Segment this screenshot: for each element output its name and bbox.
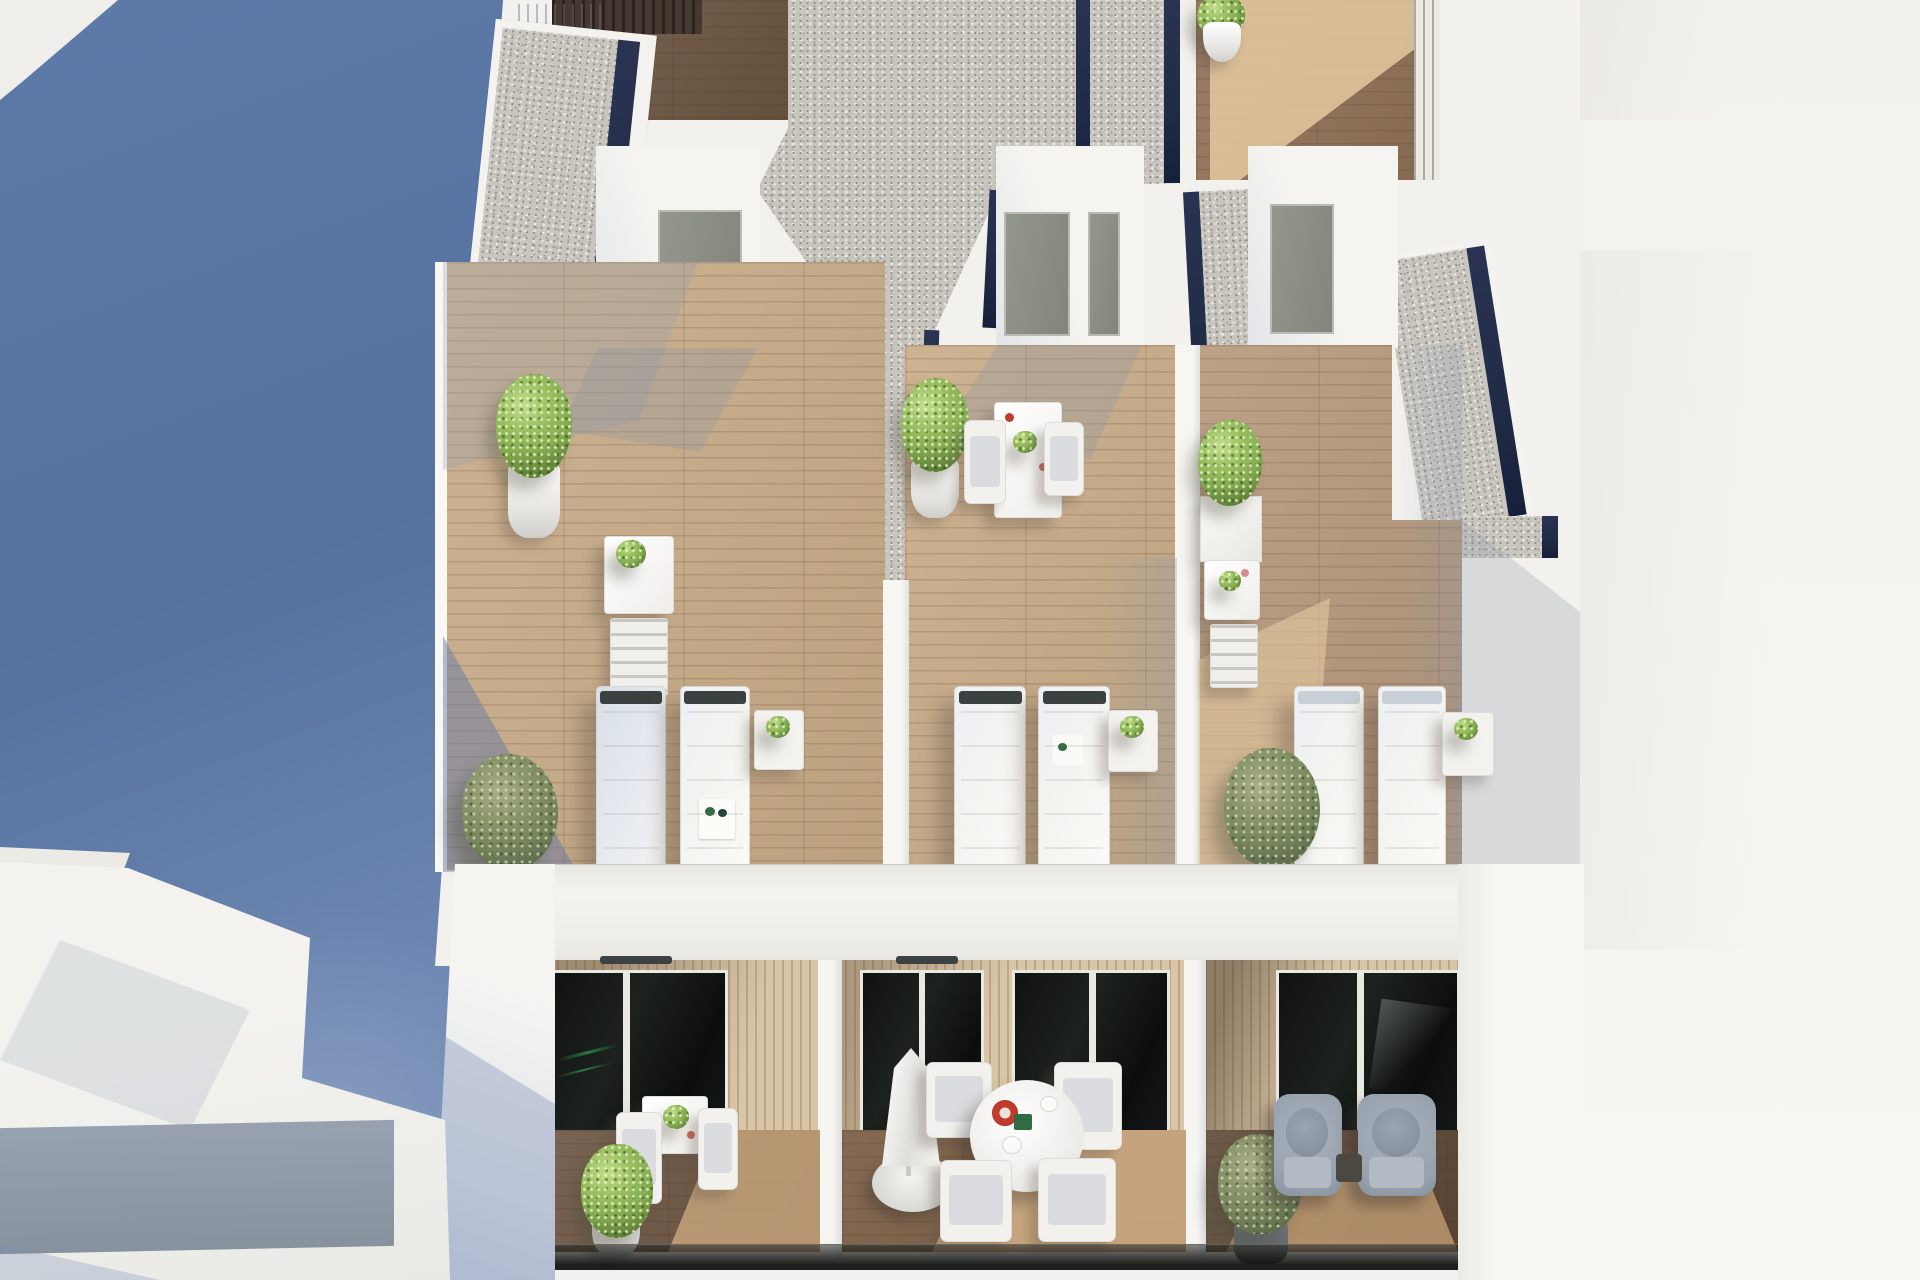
balcony-divider-post-1 <box>818 960 842 1260</box>
balcony-divider-post-2 <box>1184 960 1206 1260</box>
stair-hut-middle-door-b <box>1088 212 1120 336</box>
balcony-bottom-rail <box>430 1270 1465 1280</box>
balcony-left-chair-2 <box>698 1108 738 1190</box>
left-side-table-plant <box>766 716 790 738</box>
balcony-right-armchair-1 <box>1274 1094 1342 1196</box>
middle-slider-handle <box>896 956 958 964</box>
east-wall-gravel-drain <box>1542 516 1558 558</box>
magazine-tray <box>699 799 735 839</box>
white-cup-1 <box>1002 1136 1022 1154</box>
right-terrace-olive-bush <box>1224 748 1320 868</box>
right-slider-reflection <box>1369 999 1451 1098</box>
tray2-item-green <box>1058 743 1067 751</box>
middle-bistro-chair-left <box>964 420 1006 504</box>
left-terrace-folding-chair <box>610 618 668 696</box>
middle-terrace-plant <box>901 378 969 472</box>
terrace-divider-wall-1 <box>883 580 909 872</box>
left-slider-green-reflection-2 <box>556 1062 613 1078</box>
right-side-table-plant <box>1454 718 1478 740</box>
balcony-middle-chair-bottom-right <box>1038 1158 1116 1242</box>
east-wall-gravel-band <box>1462 516 1542 558</box>
right-console-pink-item <box>1241 569 1249 577</box>
left-console-plant <box>616 540 646 568</box>
magazine-tray-2 <box>1053 735 1083 765</box>
terrace-front-parapet <box>430 864 1580 967</box>
balcony-glass-balustrade <box>548 1244 1464 1273</box>
balcony-right-side-table <box>1336 1154 1362 1182</box>
aerial-building-render <box>0 0 1920 1280</box>
middle-terrace-lounger-2 <box>1038 686 1110 870</box>
right-terrace-console-table <box>1204 560 1260 620</box>
left-terrace-lounger-2 <box>680 686 750 868</box>
middle-bistro-chair-right <box>1044 422 1084 496</box>
balcony-left-bush <box>581 1144 653 1238</box>
gravel-drain-edge-right <box>1164 0 1180 183</box>
balcony-middle-chair-bottom-left <box>940 1160 1012 1242</box>
middle-terrace-lounger-1 <box>954 686 1026 870</box>
middle-side-table-plant <box>1120 716 1144 738</box>
left-slider-green-reflection <box>558 1044 619 1062</box>
left-terrace-lounger-1 <box>596 686 666 870</box>
bottom-left-recessed-band <box>0 1120 394 1254</box>
right-console-plant <box>1219 571 1241 591</box>
right-terrace-lounger-2 <box>1378 686 1446 868</box>
stair-hut-right-door <box>1270 204 1334 334</box>
terrace-divider-wall-2 <box>1175 345 1200 872</box>
east-end-wall <box>1458 864 1584 1280</box>
tray-item-dark <box>718 809 727 817</box>
white-cup-2 <box>1040 1096 1058 1112</box>
right-terrace-folding-chair <box>1210 624 1258 688</box>
upper-right-railing <box>1414 0 1440 180</box>
stair-hut-middle-door-a <box>1004 212 1070 336</box>
left-slider-handle <box>600 956 672 964</box>
green-box <box>1014 1114 1032 1130</box>
left-terrace-tree <box>496 374 572 478</box>
backdrop-right-soft-shade <box>1580 250 1920 950</box>
balcony-right-armchair-2 <box>1358 1094 1436 1196</box>
left-terrace-olive-bush <box>462 754 558 870</box>
balcony-left-table-plant <box>663 1105 689 1129</box>
balcony-left-table-red-item <box>687 1131 695 1139</box>
tray-item-green <box>705 807 715 816</box>
right-terrace-planter-bush <box>1198 420 1262 506</box>
far-right-gravel-roof-strip <box>1388 240 1528 536</box>
bistro-table-red-item <box>1005 413 1014 422</box>
terrace-west-wall-edge <box>435 262 447 872</box>
bistro-table-plant <box>1013 431 1037 453</box>
